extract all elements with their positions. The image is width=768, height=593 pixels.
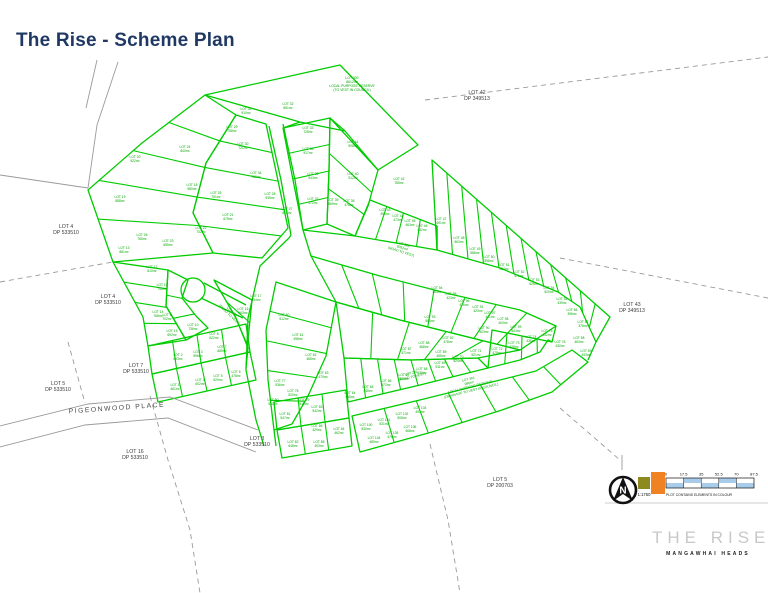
parcel-label: LOT 3DP 533510 xyxy=(244,436,270,448)
lot-label: LOT 29758m² xyxy=(227,125,238,133)
road-edge-line xyxy=(303,230,311,256)
lot-label: LOT 79515m² xyxy=(299,398,310,406)
lot-block-outline xyxy=(88,95,236,262)
lot-division-line xyxy=(505,333,507,364)
lot-label: LOT 77536m² xyxy=(275,379,286,387)
lot-division-line xyxy=(403,282,405,321)
cadastral-boundary-line xyxy=(560,408,620,460)
road-edge-line xyxy=(274,430,276,446)
lot-label: LOT 41908m² xyxy=(348,140,359,148)
lot-division-line xyxy=(167,295,183,298)
parcel-label: LOT 43DP 349513 xyxy=(619,302,645,314)
lot-label: LOT 58463m² xyxy=(574,336,585,344)
lot-label: LOT 44473m² xyxy=(393,214,404,222)
scale-ratio: 1:1750 xyxy=(638,492,651,497)
svg-text:N: N xyxy=(619,486,626,497)
lot-label: LOT 97441m² xyxy=(485,311,496,319)
lot-label: LOT 39569m² xyxy=(328,198,339,206)
lot-label: LOT 48563m² xyxy=(454,236,465,244)
lot-label: LOT 57378m² xyxy=(578,320,589,328)
parcel-label: LOT 16DP 533510 xyxy=(122,449,148,461)
lot-label: LOT 91420m² xyxy=(473,305,484,313)
lot-label: LOT 93586m² xyxy=(425,315,436,323)
lot-division-line xyxy=(543,367,560,385)
lot-label: LOT 32651m² xyxy=(283,102,294,110)
lot-block-outline xyxy=(266,282,336,430)
lot-label: LOT 11745m² xyxy=(157,283,168,291)
lot-label: LOT 18980m² xyxy=(187,183,198,191)
lot-label: LOT 69511m² xyxy=(435,361,446,369)
lot-label: LOT 102508m² xyxy=(396,412,409,420)
scale-tick-label: 35 xyxy=(699,472,704,477)
lot-label: LOT 66472m² xyxy=(381,379,392,387)
street-label: PIGEONWOOD PLACE xyxy=(69,402,166,416)
lot-division-line xyxy=(169,123,220,141)
road-label: LOT 2009052m²(ROAD TO VEST) xyxy=(387,238,417,258)
lot-division-line xyxy=(325,422,329,450)
lot-label: LOT 19888m² xyxy=(115,195,126,203)
parcel-label: LOT 4DP 533510 xyxy=(95,294,121,306)
lot-label: LOT 54520m² xyxy=(544,286,555,294)
lot-label: LOT 5520m² xyxy=(213,374,223,382)
lot-label: LOT 1461m² xyxy=(170,383,180,391)
lot-label: LOT 49586m² xyxy=(470,247,481,255)
lot-division-line xyxy=(197,335,201,363)
legend-orange-swatch xyxy=(651,472,665,494)
lot-label: LOT 52571m² xyxy=(514,270,525,278)
scale-bar: 017.53552.57087.51:1750PLOT CONTAINS ELE… xyxy=(630,468,768,504)
lot-label: LOT 34758m² xyxy=(251,171,262,179)
lot-label: LOT 23655m² xyxy=(163,239,174,247)
parcel-label: LOT 7DP 533510 xyxy=(123,363,149,375)
lot-label: LOT 9702m² xyxy=(162,313,172,321)
lot-label: LOT 20922m² xyxy=(130,155,141,163)
lot-label: LOT 26765m² xyxy=(137,233,148,241)
lot-label: LOT 55439m² xyxy=(557,297,568,305)
lot-division-line xyxy=(133,151,205,168)
colour-note: PLOT CONTAINS ELEMENTS IN COLOUR xyxy=(666,493,733,497)
lot-division-line xyxy=(301,426,305,454)
lot-division-line xyxy=(371,312,373,358)
lot-division-line xyxy=(447,173,453,254)
lot-label: LOT 38476m² xyxy=(344,199,355,207)
scale-tick-label: 87.5 xyxy=(750,472,759,477)
lot-label: LOT 95423m² xyxy=(446,292,457,300)
scale-tick-label: 17.5 xyxy=(680,472,689,477)
scheme-plan-map: LOT 1461m²LOT 2693m²LOT 3596m²LOT 4602m²… xyxy=(0,0,768,593)
lot-label: LOT 94464m² xyxy=(432,286,443,294)
lot-label: LOT 10736m² xyxy=(188,323,199,331)
lot-label: LOT 103491m² xyxy=(414,406,427,414)
lot-label: LOT 81547m² xyxy=(280,412,291,420)
lot-division-line xyxy=(378,359,384,394)
lot-label: LOT 96476m² xyxy=(459,299,470,307)
lot-label: LOT 56396m² xyxy=(567,308,578,316)
lot-label: LOT 86429m² xyxy=(312,424,323,432)
cadastral-boundary-line xyxy=(150,396,200,593)
lot-label: LOT 60512m² xyxy=(279,313,290,321)
lot-label: LOT 25791m² xyxy=(211,191,222,199)
lot-division-line xyxy=(222,330,226,358)
lot-label: LOT 3596m² xyxy=(193,350,203,358)
lot-label: LOT 27812m² xyxy=(282,207,293,215)
lot-label: LOT 65448m² xyxy=(363,385,374,393)
cadastral-boundary-line xyxy=(0,262,113,282)
lot-division-line xyxy=(445,359,454,377)
brand-subtitle: MANGAWHAI HEADS xyxy=(652,551,764,557)
lot-label: LOT 92478m² xyxy=(443,336,454,344)
lot-division-line xyxy=(372,274,381,315)
lot-block-outline xyxy=(432,160,610,342)
lot-label: LOT 62485m² xyxy=(306,353,317,361)
lot-label: LOT 2693m² xyxy=(173,353,183,361)
lot-label: LOT 37472m² xyxy=(308,197,319,205)
cadastral-boundary-line xyxy=(430,444,460,593)
brand-name: THE RISE xyxy=(652,528,764,548)
lot-label: LOT 59433m² xyxy=(581,349,592,357)
lot-label: LOT 105476m² xyxy=(386,431,399,439)
lot-division-line xyxy=(342,265,359,309)
lot-division-line xyxy=(512,377,529,400)
lot-label: LOT 35943m² xyxy=(308,172,319,180)
lot-division-line xyxy=(98,219,199,226)
lot-label: LOT 8622m² xyxy=(209,332,219,340)
parcel-label: LOT 5DP 200703 xyxy=(487,477,513,489)
reserve-label: LOT 3008612m²LOCAL PURPOSE RESERVE(TO VE… xyxy=(329,76,375,92)
lot-division-line xyxy=(173,314,194,318)
lot-label: LOT 100530m² xyxy=(360,423,373,431)
road-edge-line xyxy=(289,235,291,238)
lot-label: LOT 15692m² xyxy=(167,329,178,337)
lot-label: LOT 36917m² xyxy=(303,147,314,155)
lot-label: LOT 33728m² xyxy=(303,126,314,134)
lot-division-line xyxy=(266,341,326,354)
lot-label: LOT 31910m² xyxy=(241,107,252,115)
lot-label: LOT 47491m² xyxy=(436,217,447,225)
lot-label: LOT 12810m² xyxy=(147,265,158,273)
cadastral-boundary-line xyxy=(560,258,768,298)
scheme-plan-page: The Rise - Scheme Plan LOT 1461m²LOT 269… xyxy=(0,0,768,593)
lot-label: LOT 50558m² xyxy=(484,255,495,263)
lot-label: LOT 76430m² xyxy=(555,340,566,348)
cadastral-boundary-line xyxy=(0,418,256,452)
lot-label: LOT 21675m² xyxy=(223,213,234,221)
lot-label: LOT 98400m² xyxy=(498,317,509,325)
lot-label: LOT 40912m² xyxy=(348,172,359,180)
lot-label: LOT 42785m² xyxy=(394,177,405,185)
lot-label: LOT 24840m² xyxy=(180,145,191,153)
parcel-label: LOT 4DP 533510 xyxy=(53,224,79,236)
scale-tick-label: 70 xyxy=(734,472,739,477)
lot-label: LOT 4602m² xyxy=(195,378,205,386)
lot-label: LOT 84462m² xyxy=(334,427,345,435)
lot-division-line xyxy=(521,336,522,359)
lot-label: LOT 73428m² xyxy=(509,341,520,349)
lot-label: LOT 85493m² xyxy=(314,440,325,448)
lot-label: LOT 6478m² xyxy=(231,370,241,378)
lot-label: LOT 43494m² xyxy=(380,208,391,216)
lot-label: LOT 90503m² xyxy=(479,326,490,334)
lot-label: LOT 22702m² xyxy=(196,226,207,234)
reserve-label: LOT 301986m²LOCAL PURPOSE RESERVE(DRAINA… xyxy=(441,371,499,400)
lot-label: LOT 14768m² xyxy=(153,310,164,318)
lot-label: LOT 82648m² xyxy=(288,440,299,448)
lot-label: LOT 75452m² xyxy=(542,329,553,337)
brand-logo: THE RISE MANGAWHAI HEADS xyxy=(652,528,764,557)
lot-label: LOT 87471m² xyxy=(401,347,412,355)
cadastral-boundary-line xyxy=(0,397,258,430)
lot-label: LOT 30721m² xyxy=(238,142,249,150)
lot-label: LOT 64455m² xyxy=(345,391,356,399)
lot-label: LOT 101531m² xyxy=(378,418,391,426)
scale-tick-label: 0 xyxy=(665,472,668,477)
lot-label: LOT 74436m² xyxy=(526,335,537,343)
lot-label: LOT 78520m² xyxy=(288,389,299,397)
legend-olive-swatch xyxy=(638,477,650,489)
lot-label: LOT 28935m² xyxy=(265,192,276,200)
lot-label: LOT 80540m² xyxy=(268,398,279,406)
lot-label: LOT 72475m² xyxy=(492,347,503,355)
lot-division-line xyxy=(589,304,595,327)
lot-label: LOT 7685m² xyxy=(217,345,227,353)
cadastral-boundary-line xyxy=(68,342,85,403)
lot-label: LOT 70524m² xyxy=(453,355,464,363)
lot-label: LOT 106468m² xyxy=(404,425,417,433)
lot-label: LOT 71521m² xyxy=(471,349,482,357)
cadastral-boundary-line xyxy=(0,175,88,188)
lot-label: LOT 53525m² xyxy=(529,278,540,286)
lot-label: LOT 61498m² xyxy=(293,333,304,341)
lot-label: LOT 99504m² xyxy=(511,325,522,333)
lot-label: LOT 63470m² xyxy=(318,371,329,379)
parcel-label: LOT 5DP 533510 xyxy=(45,381,71,393)
lot-label: LOT 89455m² xyxy=(436,350,447,358)
lot-division-line xyxy=(205,167,278,181)
parcel-label: LOT 42DP 349513 xyxy=(464,90,490,102)
lot-label: LOT 45463m² xyxy=(405,219,416,227)
lot-label: LOT 16563m² xyxy=(238,307,249,315)
lot-label: LOT 46452m² xyxy=(417,224,428,232)
lot-division-line xyxy=(268,371,317,378)
lot-division-line xyxy=(199,226,281,236)
lot-label: LOT 88468m² xyxy=(419,341,430,349)
lot-division-line xyxy=(135,302,167,307)
lot-label: LOT 104489m² xyxy=(368,436,381,444)
cadastral-boundary-line xyxy=(86,60,97,108)
lot-label: LOT 51584m² xyxy=(499,263,510,271)
scale-tick-label: 52.5 xyxy=(715,472,724,477)
lot-label: LOT 17494m² xyxy=(251,294,262,302)
lot-division-line xyxy=(462,186,468,259)
lot-label: LOT 83542m² xyxy=(312,405,323,413)
lot-label: LOT 13881m² xyxy=(119,246,130,254)
lot-division-line xyxy=(201,363,207,391)
